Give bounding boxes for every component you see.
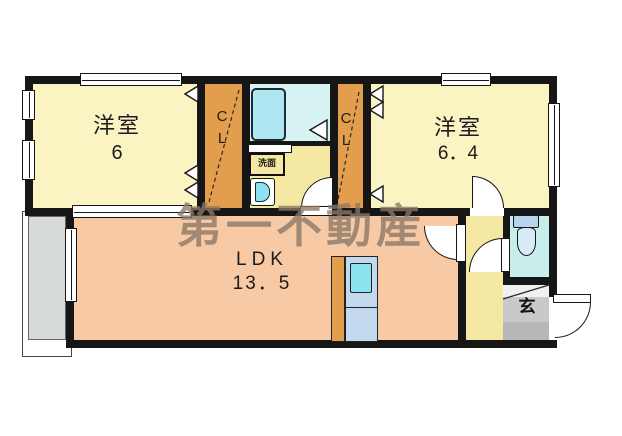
closet-left-label: CL: [213, 108, 230, 152]
wall-ldk-hall-b: [458, 260, 466, 340]
window-room6-left-2: [22, 140, 35, 180]
door-leaf-toilet: [501, 238, 510, 272]
window-room6-top: [80, 73, 182, 86]
closet-right-label: CL: [337, 110, 354, 154]
kitchen-counter-edge: [331, 256, 345, 342]
window-room64-top: [441, 73, 491, 86]
window-balcony-sliding: [65, 228, 77, 302]
watermark-text: 第一不動産: [176, 190, 476, 256]
bathtub-icon: [251, 88, 286, 141]
window-room64-right: [548, 103, 560, 187]
kitchen-unit-divider: [346, 307, 377, 308]
sliding-door-room6-ldk: [72, 205, 192, 218]
entrance-label: 玄: [515, 298, 539, 317]
wall-bottom: [66, 340, 557, 348]
bedroom-left-size: 6: [57, 142, 177, 164]
ldk-size: 13．5: [192, 274, 332, 295]
kitchen-sink-icon: [350, 263, 372, 293]
floorplan: 洗面 洋室 6 洋室 6．4 LDK 13．5 CL CL 玄 第一不動産: [0, 0, 622, 436]
wall-right-upper: [549, 76, 557, 105]
washroom-label: 洗面: [251, 159, 283, 169]
window-room6-left-1: [22, 90, 35, 120]
wall-mid-a: [25, 208, 72, 216]
balcony-floor: [28, 216, 66, 340]
bedroom-right-size: 6．4: [392, 144, 524, 165]
toilet-bowl-icon: [517, 227, 536, 256]
genkan-floor-lower: [503, 322, 549, 340]
bath-shelf: [248, 144, 292, 153]
bedroom-left-name: 洋室: [57, 114, 177, 138]
bedroom-right-name: 洋室: [398, 116, 518, 140]
door-arc-entrance: [555, 302, 591, 338]
wall-toilet-genkan: [503, 277, 557, 285]
door-leaf-entrance: [553, 294, 591, 303]
wall-hall-toilet-a: [503, 216, 510, 238]
wall-balcony-b: [66, 300, 74, 340]
washroom-label-box: 洗面: [249, 153, 285, 176]
